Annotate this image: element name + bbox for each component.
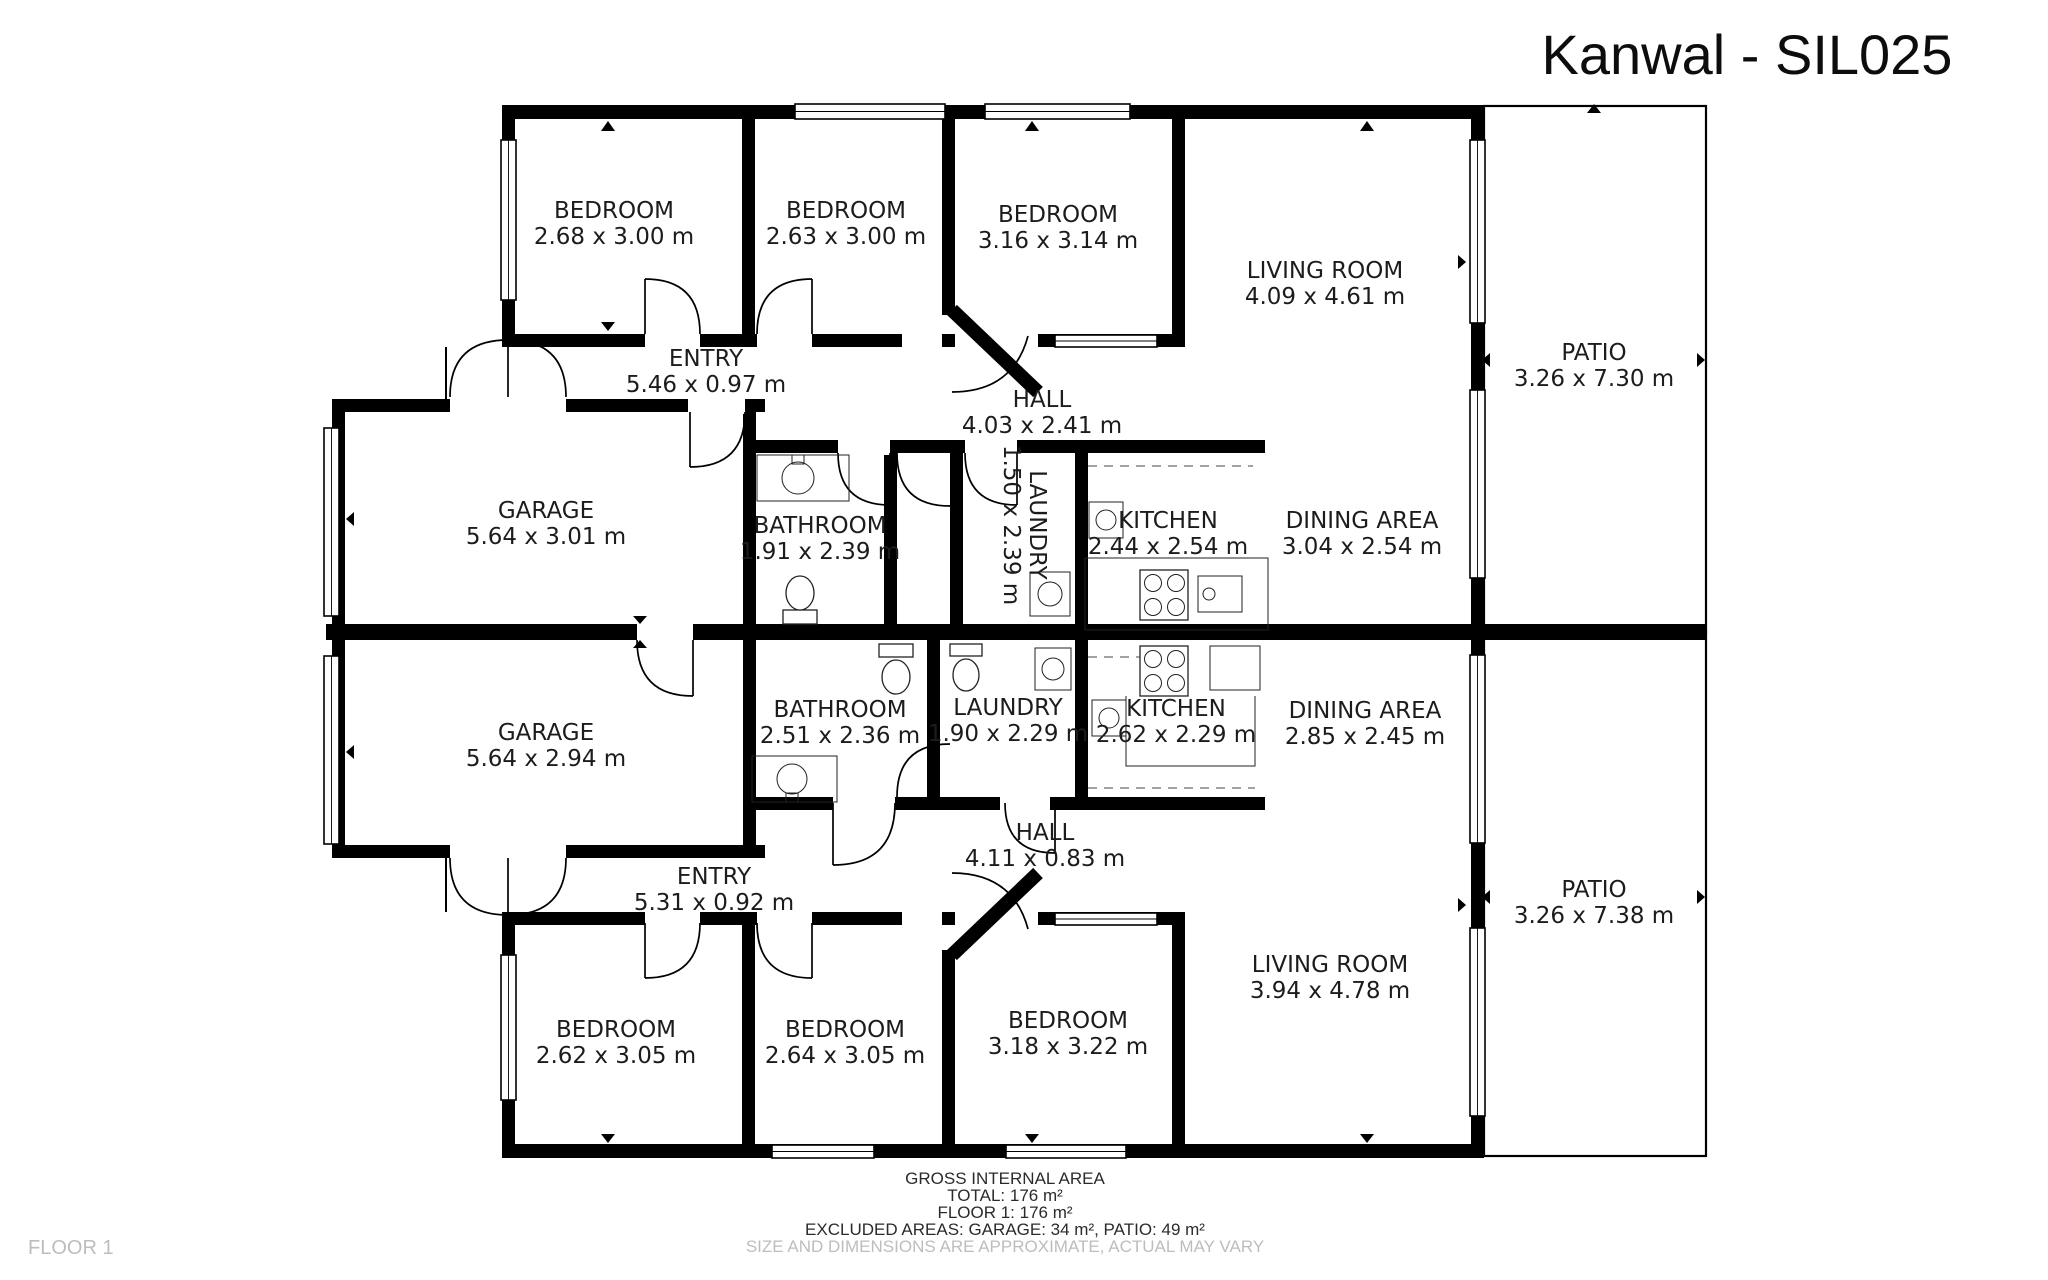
room-dims-bathroom-b: 2.51 x 2.36 m [760, 723, 920, 749]
room-dims-hall-b: 4.11 x 0.83 m [965, 846, 1125, 872]
room-label-bathroom-a: BATHROOM [753, 513, 886, 539]
room-label-patio-a: PATIO [1561, 340, 1626, 366]
room-dims-bathroom-a: 1.91 x 2.39 m [740, 539, 900, 565]
room-dims-dining-a: 3.04 x 2.54 m [1282, 534, 1442, 560]
room-label-bathroom-b: BATHROOM [773, 697, 906, 723]
room-label-laundry-a: LAUNDRY [1024, 470, 1050, 580]
kitchen-sink-icon [1198, 576, 1242, 612]
room-dims-bedroom-b3: 3.18 x 3.22 m [988, 1034, 1148, 1060]
sink-icon [777, 764, 807, 794]
room-dims-bedroom-b1: 2.62 x 3.05 m [536, 1043, 696, 1069]
room-label-bedroom-b3: BEDROOM [1008, 1008, 1128, 1034]
toilet-icon [879, 644, 913, 657]
room-dims-living-a: 4.09 x 4.61 m [1245, 284, 1405, 310]
footer: GROSS INTERNAL AREA TOTAL: 176 m² FLOOR … [746, 1169, 1264, 1256]
room-label-garage-a: GARAGE [498, 498, 594, 524]
room-dims-patio-b: 3.26 x 7.38 m [1514, 903, 1674, 929]
footer-disclaimer: SIZE AND DIMENSIONS ARE APPROXIMATE, ACT… [746, 1237, 1264, 1256]
room-label-bedroom-a3: BEDROOM [998, 202, 1118, 228]
toilet-icon [950, 644, 982, 656]
room-dims-garage-b: 5.64 x 2.94 m [466, 746, 626, 772]
room-label-dining-b: DINING AREA [1289, 698, 1442, 724]
room-label-hall-a: HALL [1013, 387, 1072, 413]
floor-label: FLOOR 1 [28, 1237, 114, 1259]
room-dims-patio-a: 3.26 x 7.30 m [1514, 366, 1674, 392]
room-label-living-a: LIVING ROOM [1247, 258, 1404, 284]
room-dims-kitchen-a: 2.44 x 2.54 m [1088, 534, 1248, 560]
room-label-living-b: LIVING ROOM [1252, 952, 1409, 978]
room-dims-garage-a: 5.64 x 3.01 m [466, 524, 626, 550]
room-dims-dining-b: 2.85 x 2.45 m [1285, 724, 1445, 750]
room-label-bedroom-b2: BEDROOM [785, 1017, 905, 1043]
room-label-bedroom-a1: BEDROOM [554, 198, 674, 224]
room-dims-entry-a: 5.46 x 0.97 m [626, 372, 786, 398]
room-dims-bedroom-a3: 3.16 x 3.14 m [978, 228, 1138, 254]
room-dims-bedroom-a2: 2.63 x 3.00 m [766, 224, 926, 250]
walls [326, 105, 1706, 1158]
room-dims-kitchen-b: 2.62 x 2.29 m [1096, 722, 1256, 748]
room-label-patio-b: PATIO [1561, 877, 1626, 903]
room-label-garage-b: GARAGE [498, 720, 594, 746]
room-label-kitchen-b: KITCHEN [1126, 696, 1226, 722]
room-label-entry-a: ENTRY [669, 346, 744, 372]
room-label-dining-a: DINING AREA [1286, 508, 1439, 534]
room-dims-bedroom-b2: 2.64 x 3.05 m [765, 1043, 925, 1069]
page-title: Kanwal - SIL025 [1542, 23, 1953, 86]
fridge-icon [1210, 646, 1260, 690]
toilet-icon [783, 610, 817, 624]
room-dims-laundry-b: 1.90 x 2.29 m [928, 721, 1088, 747]
floor-plan-drawing: BEDROOM 2.68 x 3.00 m BEDROOM 2.63 x 3.0… [0, 0, 2048, 1280]
floor-plan-page: BEDROOM 2.68 x 3.00 m BEDROOM 2.63 x 3.0… [0, 0, 2048, 1280]
room-dims-hall-a: 4.03 x 2.41 m [962, 413, 1122, 439]
room-dims-entry-b: 5.31 x 0.92 m [634, 890, 794, 916]
room-dims-bedroom-a1: 2.68 x 3.00 m [534, 224, 694, 250]
room-dims-laundry-a: 1.50 x 2.39 m [998, 445, 1024, 605]
room-label-hall-b: HALL [1016, 820, 1075, 846]
stove-icon [1140, 570, 1188, 620]
room-label-bedroom-b1: BEDROOM [556, 1017, 676, 1043]
stove-icon [1140, 646, 1188, 696]
room-label-laundry-b: LAUNDRY [953, 695, 1063, 721]
sink-icon [782, 462, 814, 494]
room-dims-living-b: 3.94 x 4.78 m [1250, 978, 1410, 1004]
direction-markers [346, 104, 1705, 1143]
room-label-kitchen-a: KITCHEN [1118, 508, 1218, 534]
room-label-entry-b: ENTRY [677, 864, 752, 890]
washer-icon [1035, 648, 1071, 690]
room-label-bedroom-a2: BEDROOM [786, 198, 906, 224]
